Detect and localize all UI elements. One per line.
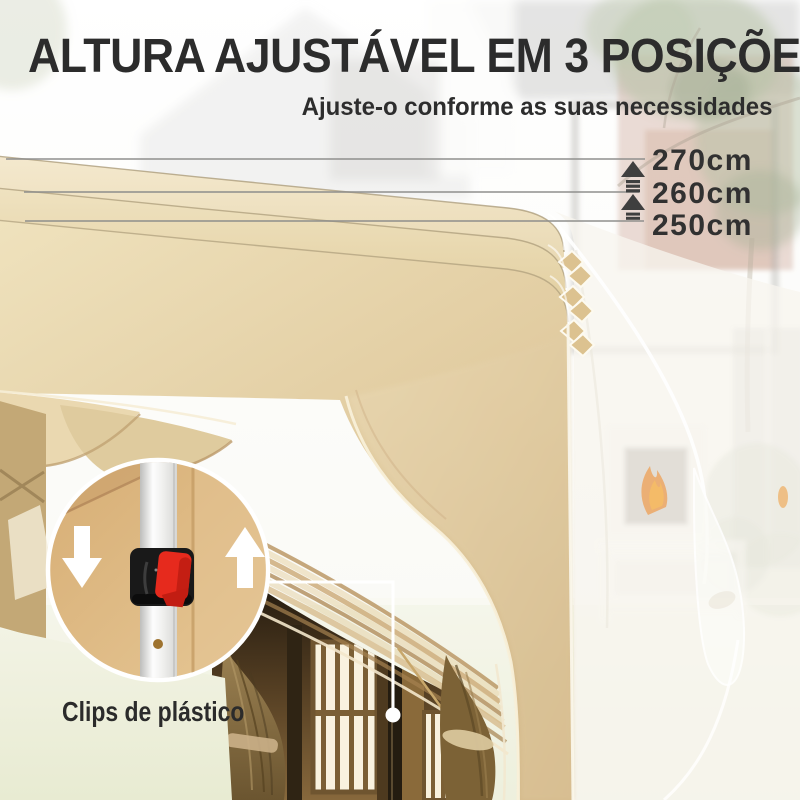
callout-label: Clips de plástico [62,698,244,726]
pole-hole [153,639,163,649]
ghost-gazebo [551,210,800,800]
torch-flame [778,486,788,508]
door-frame [287,625,302,800]
height-label-260: 260cm [652,179,753,209]
height-label-270: 270cm [652,146,753,176]
product-infographic: ALTURA AJUSTÁVEL EM 3 POSIÇÕES Ajuste-o … [0,0,800,800]
leader-dot [386,708,401,723]
height-label-250: 250cm [652,211,753,241]
page-subtitle: Ajuste-o conforme as suas necessidades [301,95,772,120]
page-title: ALTURA AJUSTÁVEL EM 3 POSIÇÕES [28,33,772,81]
